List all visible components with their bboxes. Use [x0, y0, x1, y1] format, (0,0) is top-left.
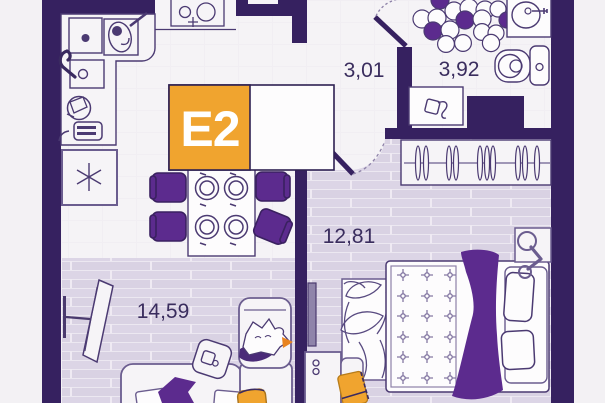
svg-text:14,59: 14,59	[137, 300, 190, 323]
svg-text:3,01: 3,01	[344, 59, 385, 82]
svg-text:12,81: 12,81	[323, 225, 376, 248]
svg-text:3,92: 3,92	[439, 58, 480, 81]
svg-text:E2: E2	[180, 101, 239, 157]
